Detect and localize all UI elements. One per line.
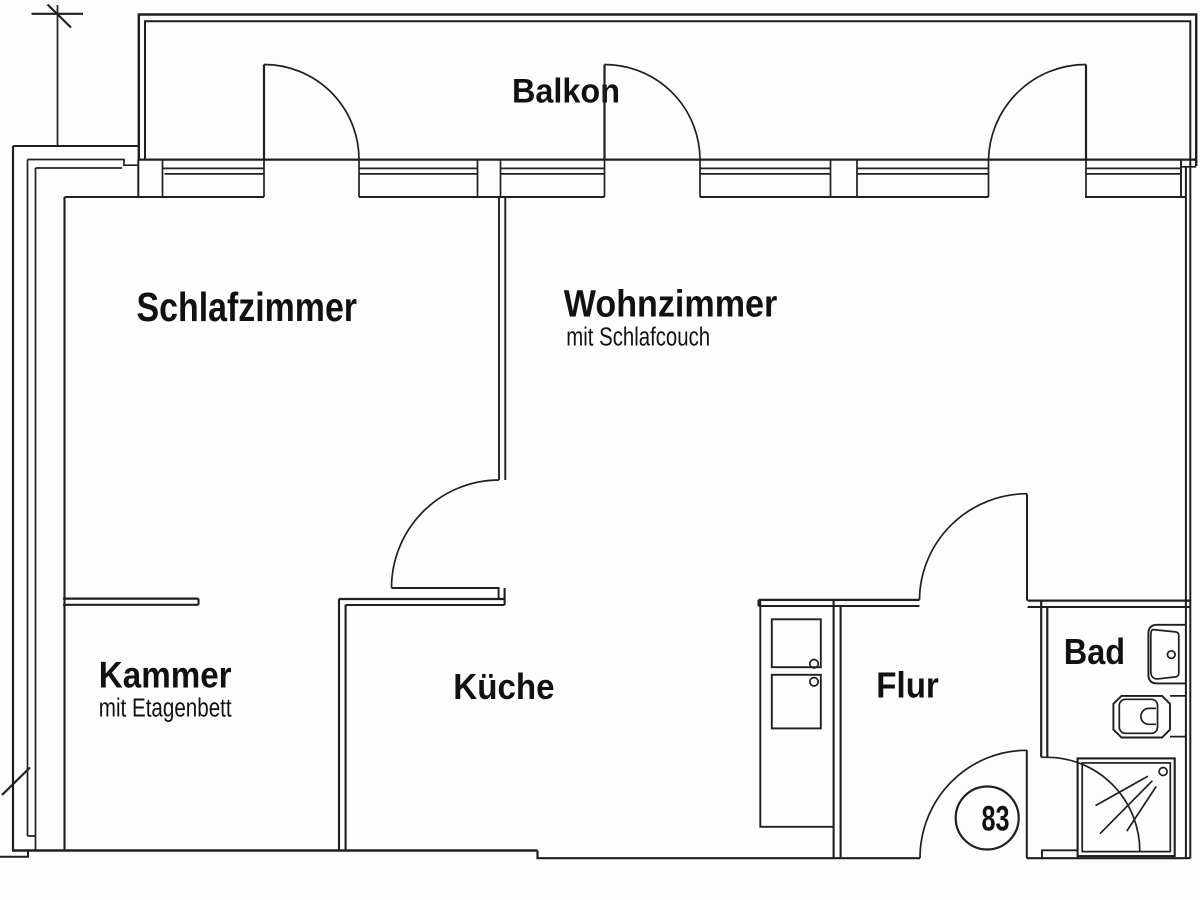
svg-text:mit Etagenbett: mit Etagenbett bbox=[99, 695, 232, 723]
svg-text:Flur: Flur bbox=[876, 665, 939, 706]
svg-text:Kammer: Kammer bbox=[99, 654, 232, 695]
svg-text:83: 83 bbox=[982, 799, 1010, 839]
svg-text:Bad: Bad bbox=[1064, 631, 1125, 672]
svg-text:mit Schlafcouch: mit Schlafcouch bbox=[566, 323, 710, 351]
svg-text:Wohnzimmer: Wohnzimmer bbox=[564, 284, 778, 326]
svg-text:Küche: Küche bbox=[453, 666, 554, 707]
svg-text:Schlafzimmer: Schlafzimmer bbox=[137, 284, 358, 330]
